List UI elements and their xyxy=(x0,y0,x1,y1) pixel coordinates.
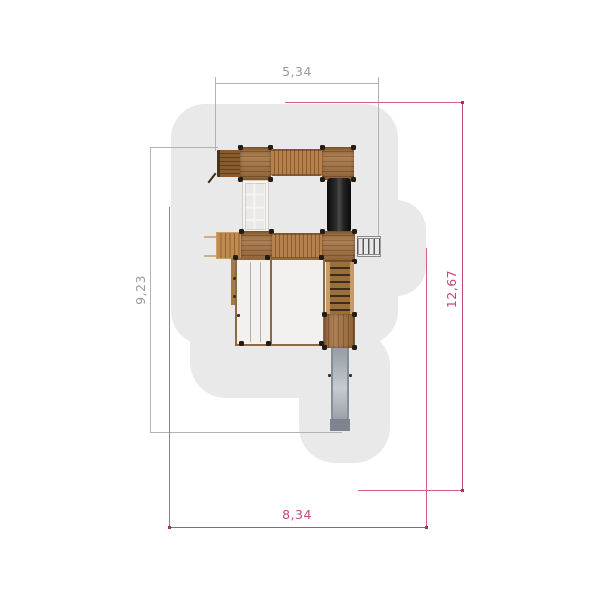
dim-line-left xyxy=(150,147,151,433)
corner-post xyxy=(322,312,327,317)
corner-post xyxy=(266,341,271,346)
dim-line-bottom xyxy=(169,527,427,528)
metal-slide xyxy=(331,348,349,421)
dim-endpoint-dot xyxy=(168,526,171,529)
frame-divider xyxy=(270,260,272,344)
fixing-mark xyxy=(233,295,236,298)
corner-post xyxy=(265,255,270,260)
dim-line-right xyxy=(462,102,463,491)
balance-beam xyxy=(250,262,251,342)
dim-label-top: 5,34 xyxy=(266,64,328,80)
plank-bridge-1 xyxy=(271,149,322,176)
fixing-mark xyxy=(233,277,236,280)
plank-bridge-2 xyxy=(272,233,322,259)
tower-platform-e xyxy=(324,314,355,348)
dim-ext-top-right xyxy=(378,77,379,237)
fixing-mark xyxy=(237,314,240,317)
dim-ext-left-top xyxy=(150,147,218,148)
slide-bracket xyxy=(349,374,352,377)
balance-beam xyxy=(260,262,261,342)
dim-ext-bottom-right xyxy=(426,248,427,528)
dim-endpoint-dot xyxy=(425,526,428,529)
metal-ladder xyxy=(357,236,381,257)
metal-slide-end xyxy=(330,419,350,431)
dim-label-bottom: 8,34 xyxy=(267,507,327,523)
corner-post xyxy=(319,255,324,260)
climbing-net xyxy=(243,181,268,232)
corner-post xyxy=(320,229,325,234)
corner-post xyxy=(352,312,357,317)
corner-post xyxy=(351,145,356,150)
dim-line-top xyxy=(215,83,379,84)
corner-post xyxy=(239,229,244,234)
dim-ext-left-bottom xyxy=(150,432,342,433)
dim-ext-right-bottom xyxy=(358,490,463,491)
dim-label-left: 9,23 xyxy=(133,260,149,320)
corner-post xyxy=(268,177,273,182)
corner-post xyxy=(351,177,356,182)
ground-frame xyxy=(235,258,325,346)
corner-post xyxy=(233,255,238,260)
corner-post xyxy=(352,229,357,234)
slide-bracket xyxy=(328,374,331,377)
playground-plan-drawing: 5,34 9,23 12,67 8,34 xyxy=(0,0,600,600)
metal-ladder-rail xyxy=(357,236,381,239)
corner-post xyxy=(320,177,325,182)
corner-post xyxy=(238,145,243,150)
metal-ladder-rail xyxy=(357,254,381,257)
dim-ext-bottom-left xyxy=(169,207,170,528)
corner-post xyxy=(322,345,327,350)
top-ramp xyxy=(217,150,242,177)
corner-post xyxy=(239,341,244,346)
dim-endpoint-dot xyxy=(461,489,464,492)
staircase xyxy=(326,262,354,316)
dim-ext-right-top xyxy=(285,102,463,103)
slat-ramp xyxy=(216,232,242,259)
tower-platform-d xyxy=(322,231,355,262)
corner-post xyxy=(352,345,357,350)
corner-post xyxy=(320,145,325,150)
tower-platform-a xyxy=(240,147,271,180)
black-tube xyxy=(327,178,351,233)
dim-ext-top-left xyxy=(215,77,216,151)
dim-endpoint-dot xyxy=(461,101,464,104)
tower-platform-b xyxy=(322,147,354,180)
dim-label-right: 12,67 xyxy=(444,254,460,324)
